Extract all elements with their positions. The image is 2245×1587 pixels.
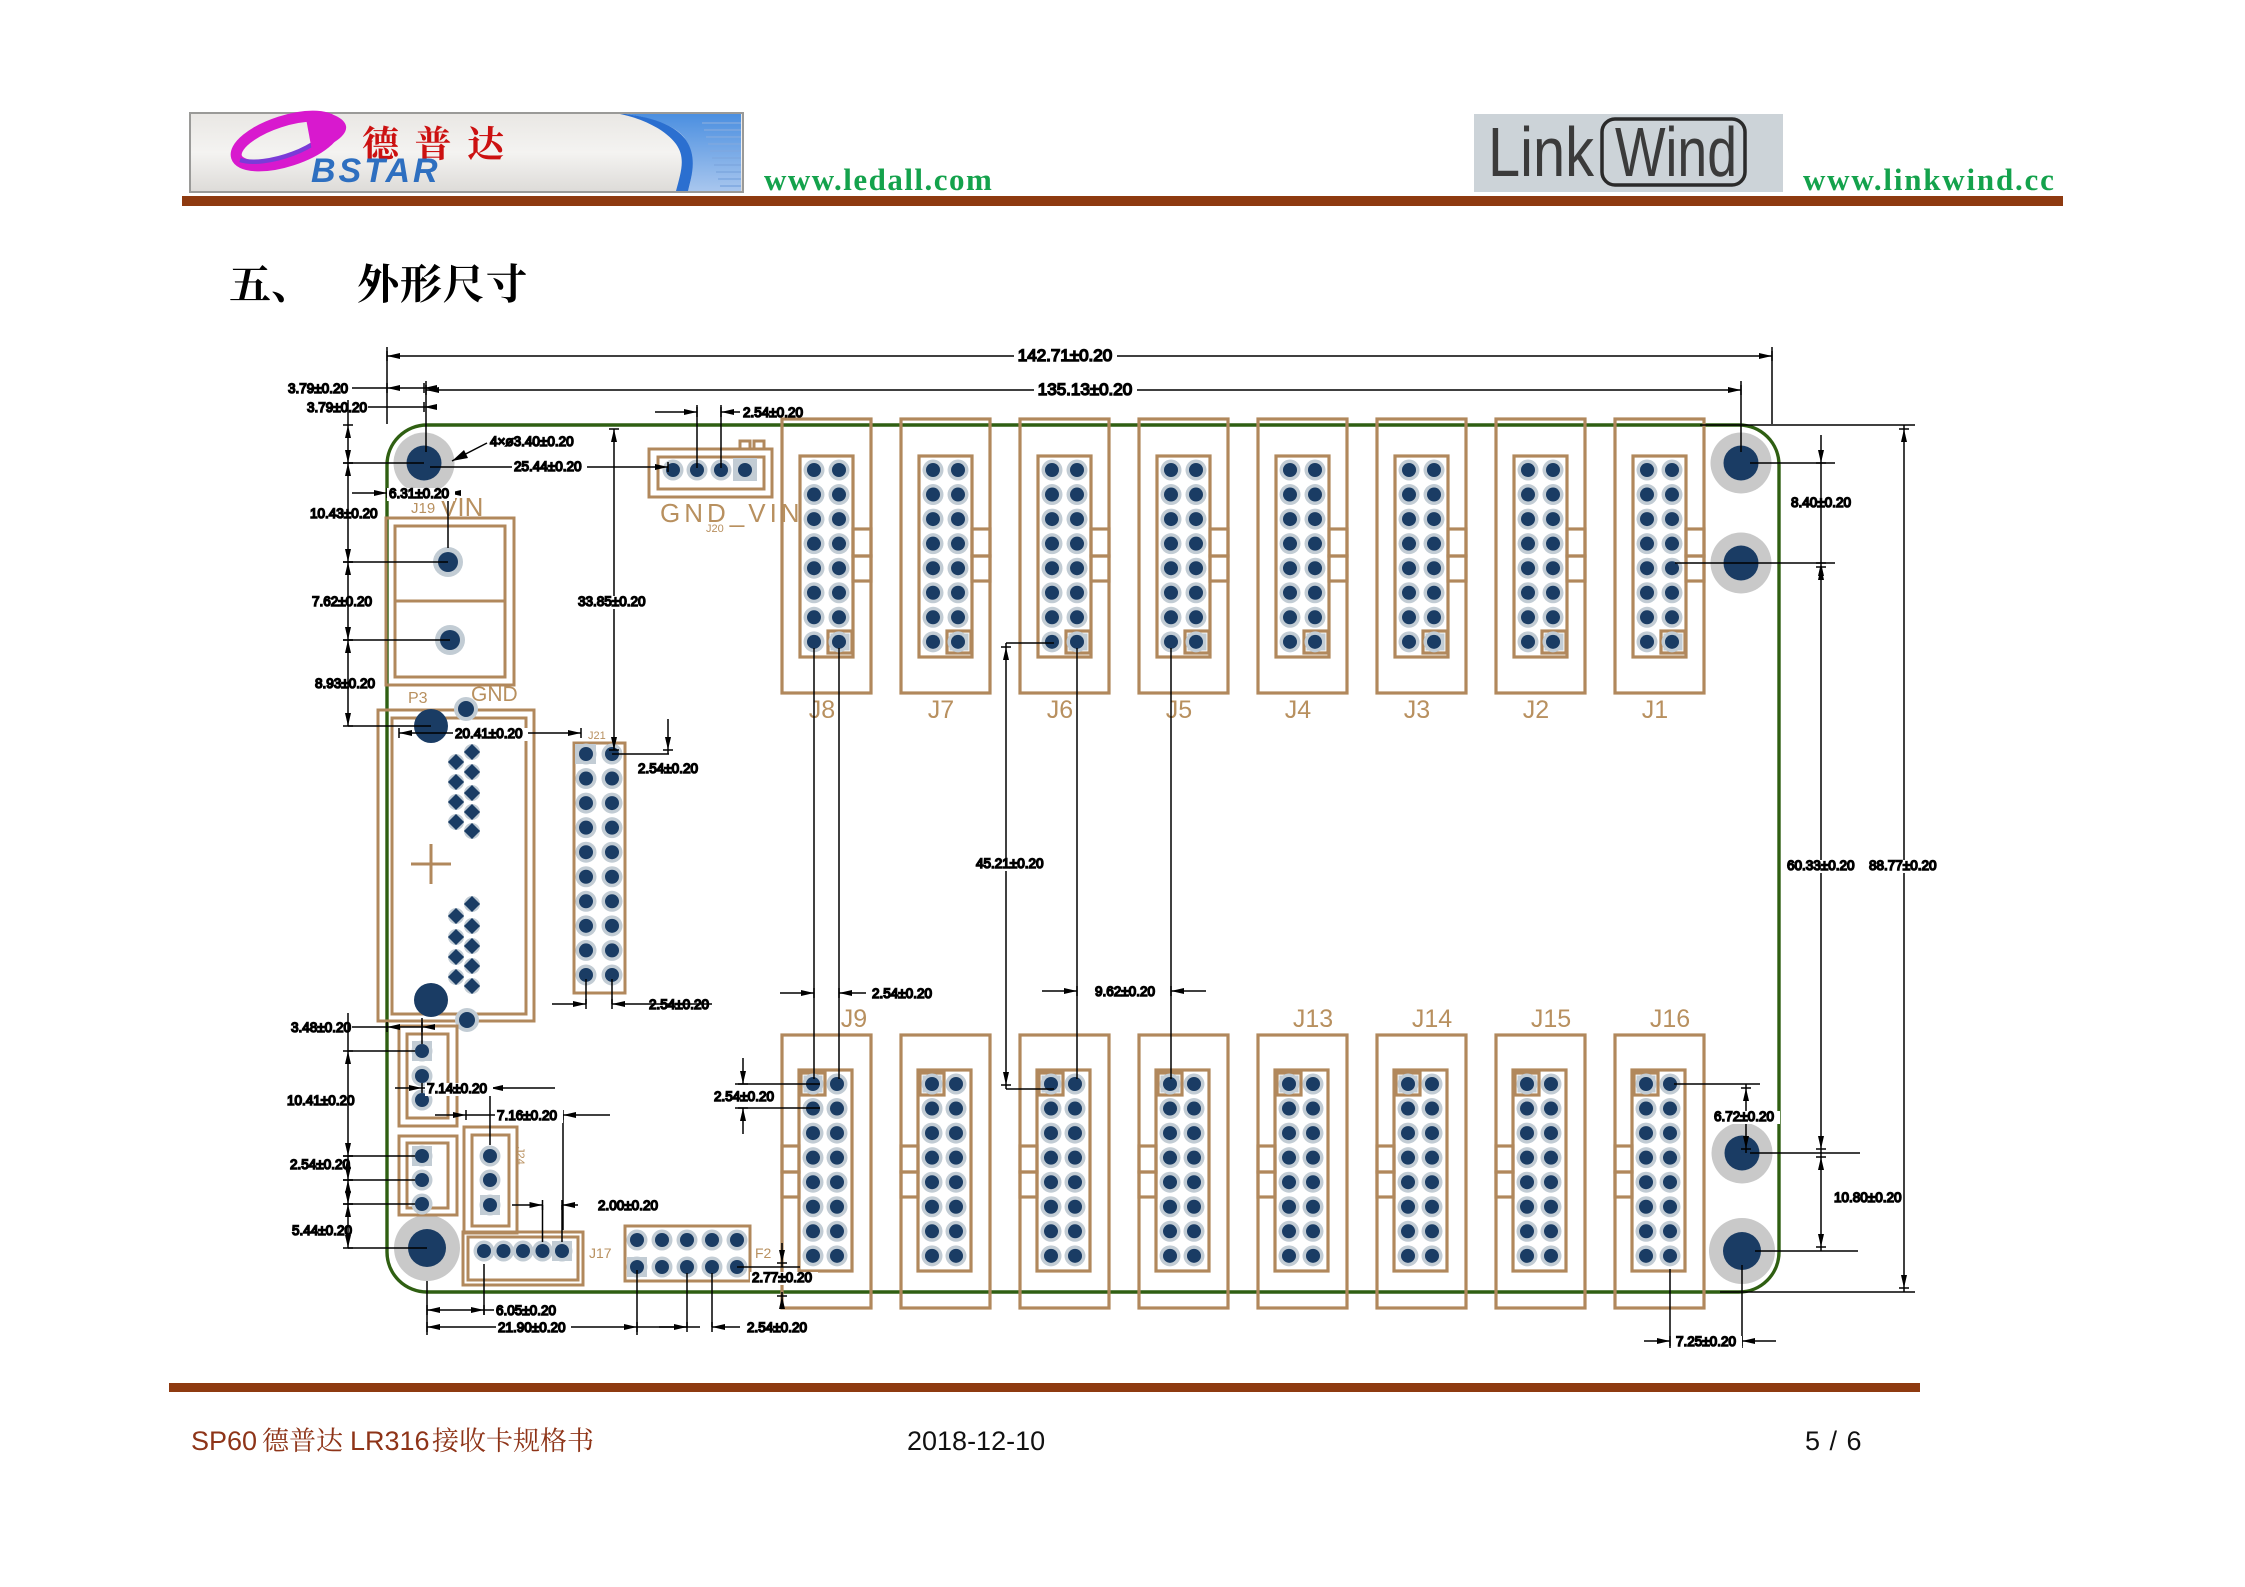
svg-text:GND: GND <box>471 683 518 706</box>
svg-text:2.54±0.20: 2.54±0.20 <box>638 761 698 776</box>
svg-text:J16: J16 <box>1650 1005 1690 1033</box>
svg-text:8.40±0.20: 8.40±0.20 <box>1791 495 1851 510</box>
svg-text:2.54±0.20: 2.54±0.20 <box>747 1320 807 1335</box>
svg-text:2.77±0.20: 2.77±0.20 <box>752 1270 812 1285</box>
svg-text:3.48±0.20: 3.48±0.20 <box>291 1020 351 1035</box>
svg-text:20.41±0.20: 20.41±0.20 <box>455 726 522 741</box>
svg-text:8.93±0.20: 8.93±0.20 <box>315 676 375 691</box>
svg-text:J17: J17 <box>589 1245 612 1261</box>
svg-text:2.54±0.20: 2.54±0.20 <box>649 997 709 1012</box>
svg-text:J20: J20 <box>706 523 724 535</box>
svg-text:60.33±0.20: 60.33±0.20 <box>1787 858 1854 873</box>
svg-text:J8: J8 <box>809 696 835 724</box>
svg-text:www.ledall.com: www.ledall.com <box>764 162 993 197</box>
svg-text:Wind: Wind <box>1615 113 1737 191</box>
svg-text:J14: J14 <box>1412 1005 1452 1033</box>
svg-text:3.79±0.20: 3.79±0.20 <box>288 381 348 396</box>
svg-text:J7: J7 <box>928 696 954 724</box>
svg-text:2.00±0.20: 2.00±0.20 <box>598 1198 658 1213</box>
svg-text:142.71±0.20: 142.71±0.20 <box>1018 346 1112 365</box>
svg-text:5 / 6: 5 / 6 <box>1805 1426 1863 1456</box>
svg-text:7.62±0.20: 7.62±0.20 <box>312 594 372 609</box>
svg-text:33.85±0.20: 33.85±0.20 <box>578 594 645 609</box>
svg-text:J1: J1 <box>1642 696 1668 724</box>
svg-text:25.44±0.20: 25.44±0.20 <box>514 459 581 474</box>
svg-text:J21: J21 <box>588 730 606 742</box>
svg-text:10.43±0.20: 10.43±0.20 <box>310 506 377 521</box>
svg-text:Link: Link <box>1488 113 1595 191</box>
svg-text:SP60: SP60 <box>191 1426 257 1456</box>
svg-text:5.44±0.20: 5.44±0.20 <box>292 1223 352 1238</box>
svg-text:J9: J9 <box>841 1005 867 1033</box>
svg-text:2.54±0.20: 2.54±0.20 <box>743 405 803 420</box>
svg-text:J19: J19 <box>411 500 435 517</box>
svg-text:2.54±0.20: 2.54±0.20 <box>872 986 932 1001</box>
svg-text:88.77±0.20: 88.77±0.20 <box>1869 858 1936 873</box>
svg-text:J24: J24 <box>514 1147 526 1165</box>
svg-text:J15: J15 <box>1531 1005 1571 1033</box>
svg-text:J3: J3 <box>1404 696 1430 724</box>
svg-text:6.05±0.20: 6.05±0.20 <box>496 1303 556 1318</box>
svg-text:BSTAR: BSTAR <box>311 152 441 190</box>
svg-text:www.linkwind.cc: www.linkwind.cc <box>1803 162 2056 197</box>
svg-text:45.21±0.20: 45.21±0.20 <box>976 856 1043 871</box>
svg-text:2018-12-10: 2018-12-10 <box>907 1426 1045 1456</box>
svg-text:9.62±0.20: 9.62±0.20 <box>1095 984 1155 999</box>
svg-text:P3: P3 <box>408 690 428 707</box>
svg-text:2.54±0.20: 2.54±0.20 <box>290 1157 350 1172</box>
svg-text:6.31±0.20: 6.31±0.20 <box>389 486 449 501</box>
svg-text:J5: J5 <box>1166 696 1192 724</box>
svg-text:6.72±0.20: 6.72±0.20 <box>1714 1109 1774 1124</box>
svg-text:10.80±0.20: 10.80±0.20 <box>1834 1190 1901 1205</box>
svg-text:135.13±0.20: 135.13±0.20 <box>1038 380 1132 399</box>
svg-text:3.79±0.20: 3.79±0.20 <box>307 400 367 415</box>
svg-text:7.25±0.20: 7.25±0.20 <box>1676 1334 1736 1349</box>
svg-text:J2: J2 <box>1523 696 1549 724</box>
svg-text:7.14±0.20: 7.14±0.20 <box>427 1081 487 1096</box>
svg-text:7.16±0.20: 7.16±0.20 <box>497 1108 557 1123</box>
svg-text:F2: F2 <box>755 1245 772 1261</box>
svg-text:4×ø3.40±0.20: 4×ø3.40±0.20 <box>490 434 574 449</box>
svg-text:2.54±0.20: 2.54±0.20 <box>714 1089 774 1104</box>
svg-text:J6: J6 <box>1047 696 1073 724</box>
svg-text:21.90±0.20: 21.90±0.20 <box>498 1320 565 1335</box>
svg-text:10.41±0.20: 10.41±0.20 <box>287 1093 354 1108</box>
svg-text:LR316: LR316 <box>350 1426 430 1456</box>
svg-text:J13: J13 <box>1293 1005 1333 1033</box>
svg-text:J4: J4 <box>1285 696 1312 724</box>
svg-text:GND_VIN: GND_VIN <box>660 498 804 528</box>
